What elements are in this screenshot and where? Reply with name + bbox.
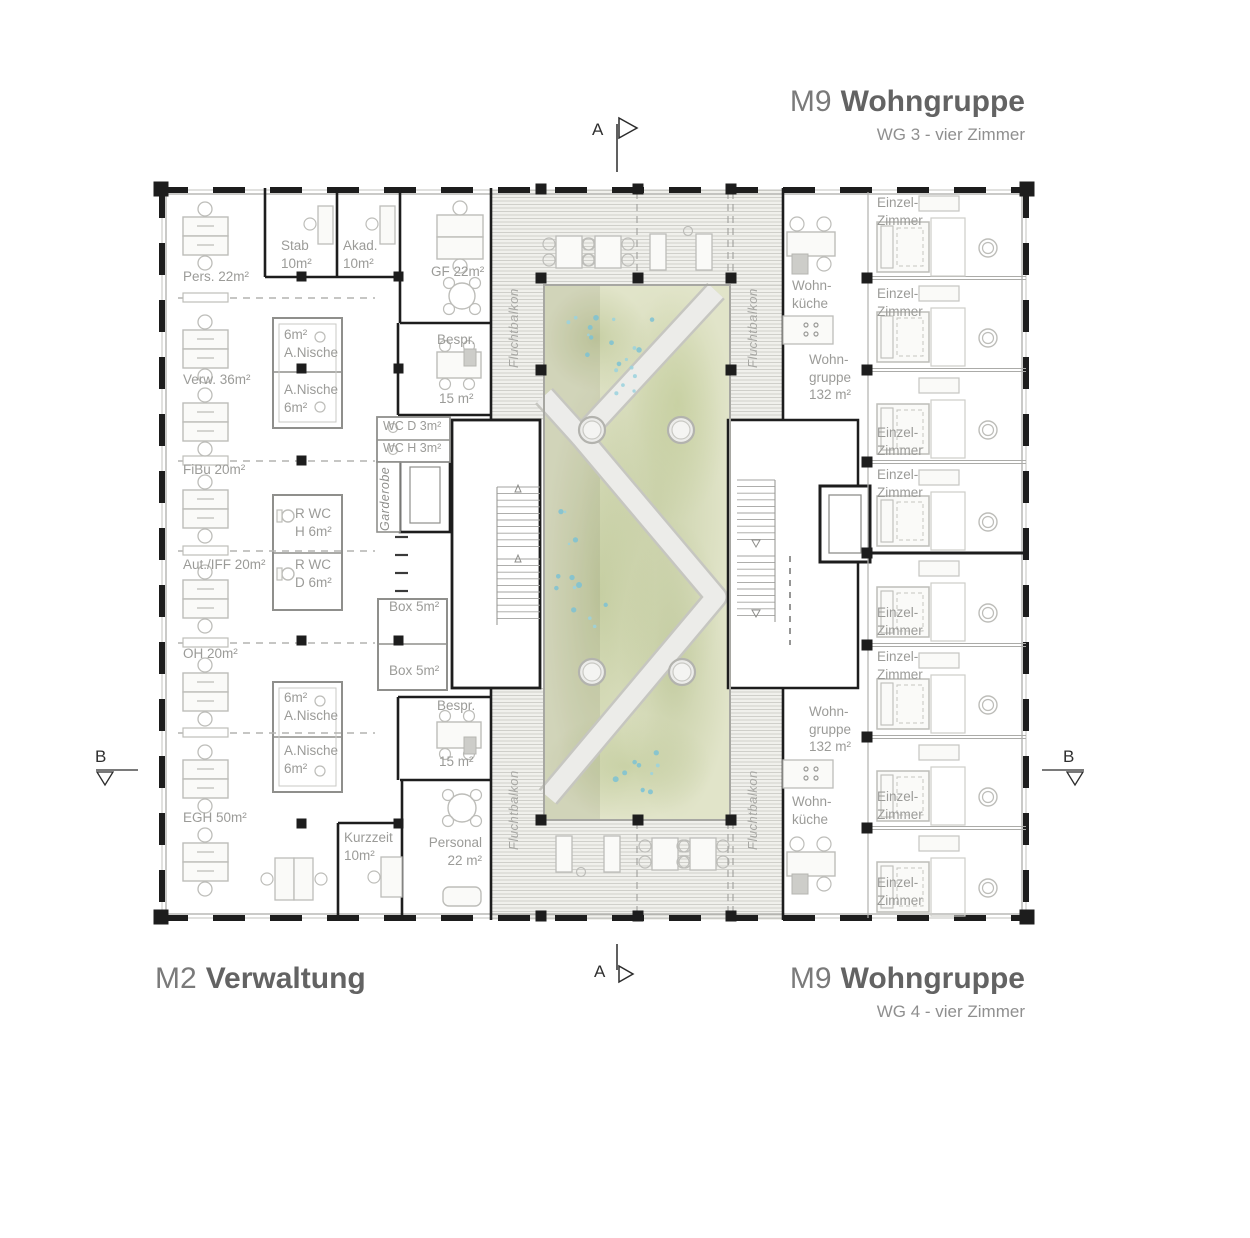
room-label-rwc-d: R WC D 6m² bbox=[295, 556, 332, 591]
room-label-bespr-top-area: 15 m² bbox=[439, 390, 474, 408]
title-bottom-left: M2Verwaltung bbox=[155, 962, 366, 996]
room-label-oh: OH 20m² bbox=[183, 645, 238, 663]
room-label-rwc-h: R WC H 6m² bbox=[295, 505, 332, 540]
room-label-verw: Verw. 36m² bbox=[183, 371, 251, 389]
room-label-garderobe: Garderobe bbox=[378, 455, 392, 531]
room-label-stab: Stab 10m² bbox=[281, 237, 312, 272]
label-fluchtbalkon-top-right: Fluchtbalkon bbox=[745, 268, 760, 368]
room-label-wc-d: WC D 3m² bbox=[383, 418, 441, 434]
room-label-wohngruppe-bot: Wohn- gruppe 132 m² bbox=[809, 703, 851, 756]
room-label-nische-bot-a: 6m² A.Nische bbox=[284, 689, 338, 724]
room-label-akad: Akad. 10m² bbox=[343, 237, 378, 272]
room-label-nische-bot-b: A.Nische 6m² bbox=[284, 742, 338, 777]
room-label-bespr-bot-area: 15 m² bbox=[439, 753, 474, 771]
title-name: Wohngruppe bbox=[841, 85, 1025, 118]
room-label-einzelzimmer-7: Einzel- Zimmer bbox=[877, 788, 923, 823]
section-marker-a-bottom: A bbox=[594, 962, 605, 982]
label-fluchtbalkon-bottom-right: Fluchtbalkon bbox=[745, 750, 760, 850]
room-label-fibu: FiBu 20m² bbox=[183, 461, 245, 479]
room-label-einzelzimmer-8: Einzel- Zimmer bbox=[877, 874, 923, 909]
room-label-personal: Personal 22 m² bbox=[410, 834, 482, 869]
room-label-egh: EGH 50m² bbox=[183, 809, 247, 827]
room-label-nische-top-a: 6m² A.Nische bbox=[284, 326, 338, 361]
room-label-einzelzimmer-3: Einzel- Zimmer bbox=[877, 424, 923, 459]
room-label-gf: GF 22m² bbox=[431, 263, 484, 281]
label-fluchtbalkon-top-left: Fluchtbalkon bbox=[506, 268, 521, 368]
room-label-wohnkueche-top: Wohn- küche bbox=[792, 277, 832, 312]
title-name: Verwaltung bbox=[206, 962, 366, 995]
room-label-einzelzimmer-2: Einzel- Zimmer bbox=[877, 285, 923, 320]
room-label-wohnkueche-bot: Wohn- küche bbox=[792, 793, 832, 828]
room-label-nische-top-b: A.Nische 6m² bbox=[284, 381, 338, 416]
floor-plan-drawing bbox=[0, 0, 1250, 1238]
room-label-bespr-top: Bespr. bbox=[437, 331, 475, 349]
title-code: M9 bbox=[790, 962, 832, 995]
section-marker-b-left: B bbox=[95, 747, 106, 767]
room-label-box-1: Box 5m² bbox=[389, 598, 439, 616]
floor-plan-page: M9Wohngruppe WG 3 - vier Zimmer M2Verwal… bbox=[0, 0, 1250, 1238]
room-label-kurzzeit: Kurzzeit 10m² bbox=[344, 829, 393, 864]
room-label-einzelzimmer-1: Einzel- Zimmer bbox=[877, 194, 923, 229]
subtitle-top-right: WG 3 - vier Zimmer bbox=[877, 125, 1025, 145]
title-code: M2 bbox=[155, 962, 197, 995]
room-label-bespr-bot: Bespr. bbox=[437, 697, 475, 715]
section-marker-a-top: A bbox=[592, 120, 603, 140]
label-fluchtbalkon-bottom-left: Fluchtbalkon bbox=[506, 750, 521, 850]
title-code: M9 bbox=[790, 85, 832, 118]
title-name: Wohngruppe bbox=[841, 962, 1025, 995]
subtitle-bottom-right: WG 4 - vier Zimmer bbox=[877, 1002, 1025, 1022]
title-bottom-right: M9Wohngruppe bbox=[790, 962, 1025, 996]
title-top-right: M9Wohngruppe bbox=[790, 85, 1025, 119]
room-label-pers: Pers. 22m² bbox=[183, 268, 249, 286]
room-label-wohngruppe-top: Wohn- gruppe 132 m² bbox=[809, 351, 851, 404]
section-marker-b-right: B bbox=[1063, 747, 1074, 767]
room-label-aut-iff: Aut./IFF 20m² bbox=[183, 556, 266, 574]
room-label-einzelzimmer-4: Einzel- Zimmer bbox=[877, 466, 923, 501]
room-label-einzelzimmer-5: Einzel- Zimmer bbox=[877, 604, 923, 639]
room-label-box-2: Box 5m² bbox=[389, 662, 439, 680]
room-label-wc-h: WC H 3m² bbox=[383, 440, 441, 456]
room-label-einzelzimmer-6: Einzel- Zimmer bbox=[877, 648, 923, 683]
